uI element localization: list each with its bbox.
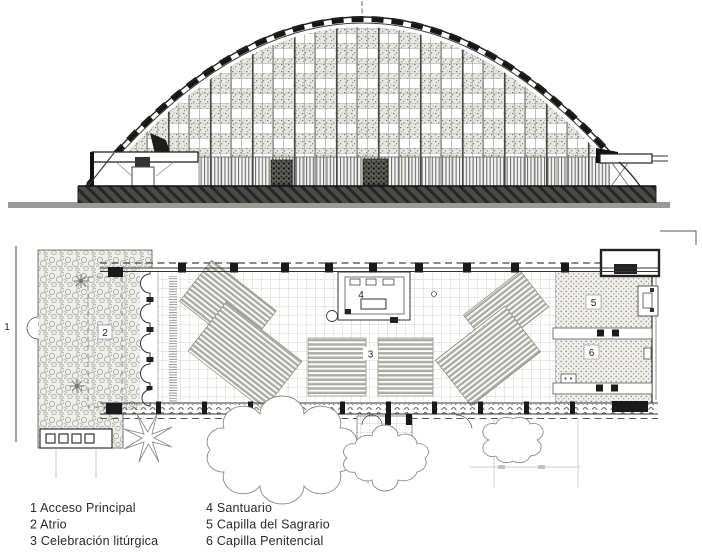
svg-text:2: 2 — [102, 328, 108, 339]
porch-pedestal — [132, 167, 154, 186]
atrium-door-swing — [27, 317, 38, 339]
tree-medium — [344, 425, 429, 491]
chapel-area: 5 6 — [553, 272, 658, 403]
ornamental-door-panel-left — [271, 160, 292, 185]
plan-label-access: 1 — [4, 322, 10, 333]
canopy-slab — [600, 154, 652, 163]
legend-item-penitencial: 6 Capilla Penitencial — [206, 534, 323, 548]
main-access-marker: 1 — [4, 246, 16, 442]
svg-text:5: 5 — [591, 298, 597, 309]
svg-text:3: 3 — [368, 350, 374, 361]
architectural-drawing-page: 1 — [0, 0, 703, 557]
legend-item-atrio: 2 Atrio — [30, 518, 67, 532]
atrium-ornament-bottom — [70, 379, 84, 393]
palm-plant — [124, 414, 172, 462]
atrium-ornament-top — [74, 274, 88, 288]
altar — [361, 299, 386, 309]
atrium-planter — [40, 429, 112, 478]
plinth — [78, 186, 656, 203]
drawing-canvas: 1 — [0, 0, 703, 557]
pews-center-left — [308, 338, 366, 396]
sacristy-room — [601, 231, 696, 276]
plan-label-liturgia-badge: 3 — [363, 347, 378, 361]
legend-item-acceso: 1 Acceso Principal — [30, 501, 136, 515]
legend-item-sagrario: 5 Capilla del Sagrario — [206, 518, 330, 532]
ornamental-door-panel-right — [363, 159, 388, 185]
floor-plan: 1 — [4, 231, 696, 504]
tree-right — [483, 417, 543, 462]
svg-text:4: 4 — [358, 290, 364, 301]
pews-center-right — [378, 338, 433, 396]
plan-label-atrio-badge: 2 — [98, 325, 112, 339]
legend-item-liturgica: 3 Celebración litúrgica — [30, 534, 158, 548]
entrance-door-wall — [141, 272, 151, 406]
baptismal-font — [327, 311, 338, 322]
tree-large — [207, 396, 357, 504]
legend-item-santuario: 4 Santuario — [206, 501, 272, 515]
legend: 1 Acceso Principal 2 Atrio 3 Celebración… — [30, 501, 330, 548]
porch-dark-block — [135, 157, 150, 167]
svg-text:6: 6 — [589, 348, 595, 359]
section-elevation — [8, 1, 670, 208]
